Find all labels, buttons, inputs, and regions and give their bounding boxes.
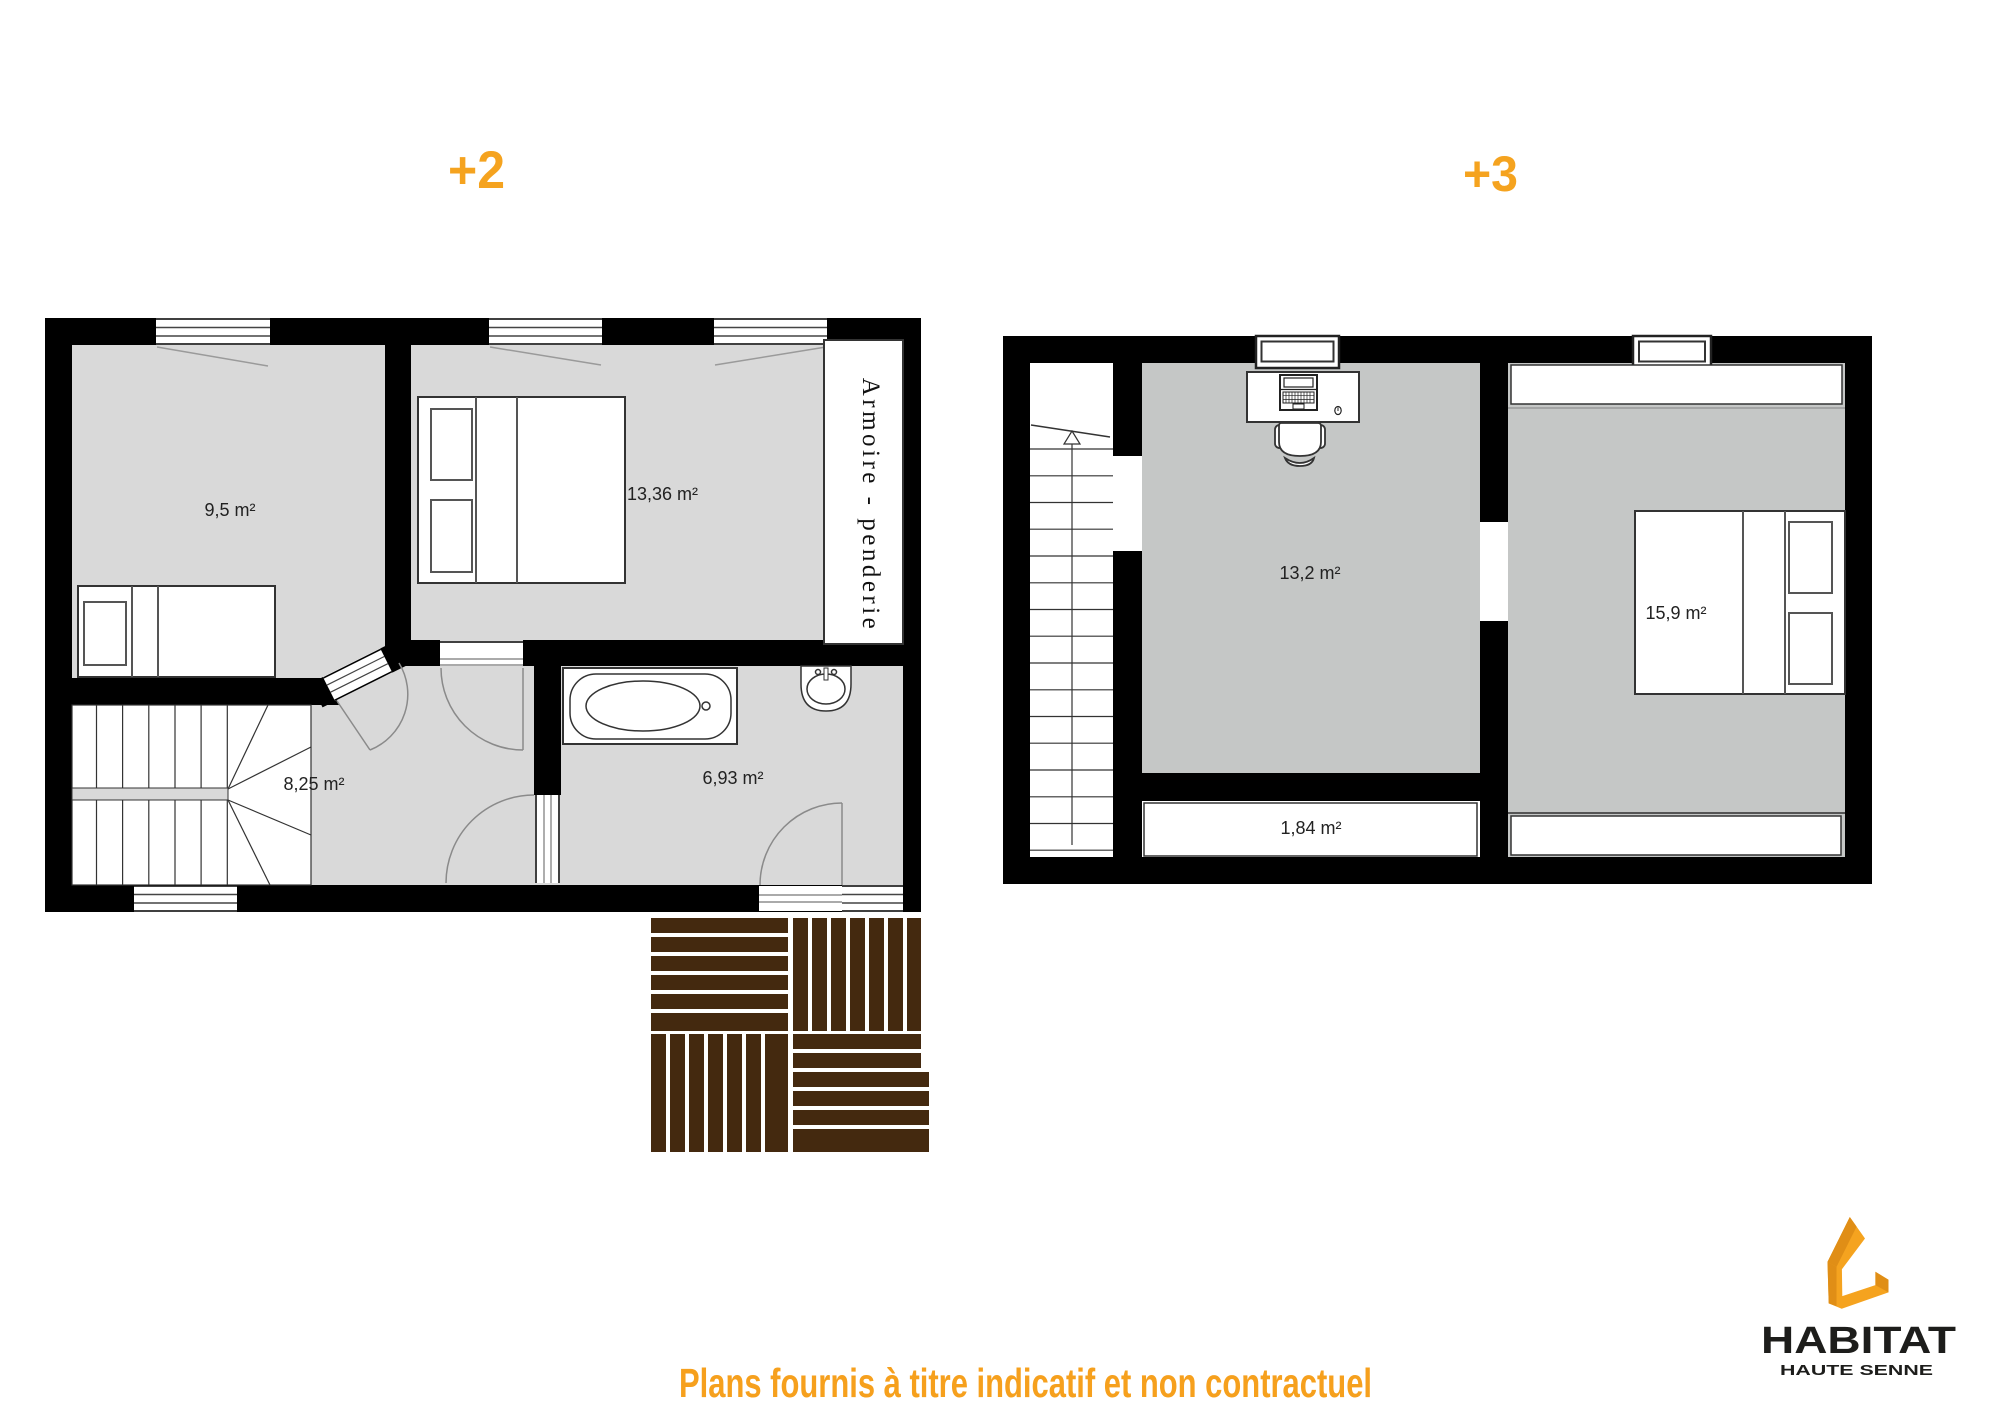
svg-text:9,5 m²: 9,5 m²	[204, 500, 255, 520]
svg-text:13,36 m²: 13,36 m²	[627, 484, 698, 504]
svg-text:1,84 m²: 1,84 m²	[1280, 818, 1341, 838]
svg-text:6,93 m²: 6,93 m²	[702, 768, 763, 788]
svg-text:HAUTE SENNE: HAUTE SENNE	[1780, 1363, 1933, 1379]
svg-text:+3: +3	[1463, 146, 1518, 202]
svg-text:Armoire - penderie: Armoire - penderie	[857, 378, 884, 633]
svg-text:+2: +2	[448, 141, 505, 200]
svg-text:13,2 m²: 13,2 m²	[1279, 563, 1340, 583]
svg-text:HABITAT: HABITAT	[1761, 1320, 1956, 1362]
svg-text:Plans fournis à titre indicati: Plans fournis à titre indicatif et non c…	[679, 1360, 1372, 1406]
svg-text:8,25 m²: 8,25 m²	[283, 774, 344, 794]
svg-text:15,9 m²: 15,9 m²	[1645, 603, 1706, 623]
